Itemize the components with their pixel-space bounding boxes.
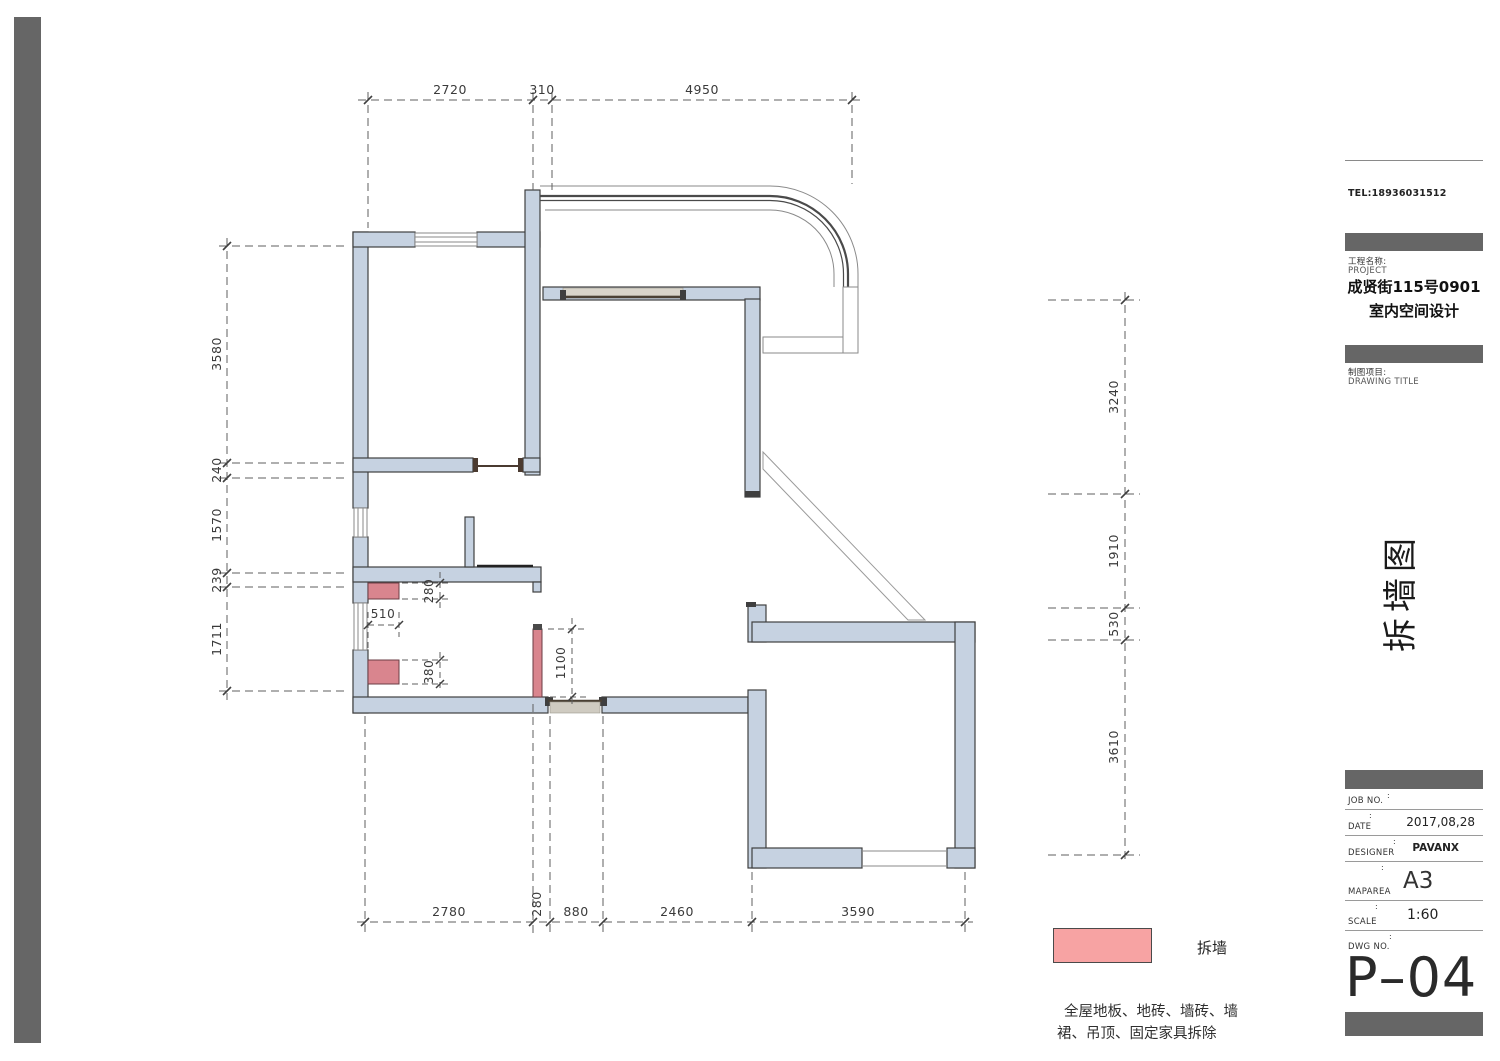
demolish-wall-1 <box>368 583 399 599</box>
dim-inner-510: 510 <box>371 607 395 621</box>
dim-bottom-280: 280 <box>529 891 544 916</box>
dim-chain-right <box>1048 292 1140 863</box>
wall-bottom-left <box>353 697 548 713</box>
balcony-curved-window <box>540 186 858 353</box>
dim-left-239: 239 <box>209 567 224 592</box>
diagonal-panel <box>763 452 925 620</box>
dim-chain-top <box>358 92 862 228</box>
dim-right-530: 530 <box>1106 611 1121 636</box>
window-hall-bottom-sill <box>550 702 600 713</box>
maparea-value: A3 <box>1403 868 1433 894</box>
title-bar-3 <box>1345 770 1483 789</box>
wall-mid-left <box>353 458 473 472</box>
scale-label: SCALE <box>1348 917 1377 927</box>
wall-stub <box>465 517 474 567</box>
project-label-en: PROJECT <box>1348 266 1387 276</box>
dim-bottom-3590: 3590 <box>841 904 875 919</box>
balcony-end-column <box>843 287 858 353</box>
door-jamb-right <box>518 458 523 472</box>
divider <box>1345 160 1483 161</box>
demolish-wall-2 <box>368 660 399 684</box>
title-bar-4 <box>1345 1012 1483 1036</box>
row-date: : DATE 2017,08,28 <box>1345 810 1483 836</box>
project-name-line2: 室内空间设计 <box>1345 300 1483 321</box>
wall-room2-bottom <box>752 848 862 868</box>
demolish-wall-3 <box>533 629 542 697</box>
dim-right-3240: 3240 <box>1106 380 1121 414</box>
dim-chain-bottom <box>357 704 973 933</box>
balcony-ledge <box>763 337 843 353</box>
title-block: TEL:18936031512 工程名称: PROJECT 成贤街115号090… <box>1345 0 1483 1061</box>
date-label: DATE <box>1348 822 1371 832</box>
drawing-sheet: 2720 310 4950 3580 240 1570 239 1711 324… <box>0 0 1500 1061</box>
title-bar-1 <box>1345 233 1483 251</box>
legend-demolish-label: 拆墙 <box>1197 937 1227 958</box>
wall-room2-right <box>955 622 975 868</box>
dim-top-4950: 4950 <box>685 82 719 97</box>
dim-bottom-880: 880 <box>563 904 588 919</box>
title-bar-2 <box>1345 345 1483 363</box>
jamb-cap-room2 <box>746 602 756 607</box>
wall-hall-right <box>745 299 760 497</box>
wall-vertical-tall <box>525 190 540 475</box>
dim-inner-1100: 1100 <box>554 647 568 680</box>
wall-mid-right <box>523 458 540 472</box>
dim-right-1910: 1910 <box>1106 534 1121 568</box>
dim-inner-380: 380 <box>422 660 436 684</box>
floor-plan-canvas: 2720 310 4950 3580 240 1570 239 1711 324… <box>0 0 1500 1061</box>
window-left-upper <box>354 508 367 537</box>
demolition-note: 全屋地板、地砖、墙砖、墙裙、吊顶、固定家具拆除 <box>1057 1001 1243 1046</box>
window-left-lower <box>354 603 367 650</box>
window-hall-top-sill <box>563 288 683 296</box>
jamb-cap-hall-right <box>745 491 760 497</box>
job-no-label: JOB NO. <box>1348 796 1383 806</box>
window-top-left <box>415 233 477 246</box>
legend-demolish-swatch <box>1053 928 1152 963</box>
dim-right-3610: 3610 <box>1106 730 1121 764</box>
dim-left-1570: 1570 <box>209 508 224 542</box>
wall-bottom-right <box>602 697 748 713</box>
dim-top-2720: 2720 <box>433 82 467 97</box>
wall-partition-step <box>533 582 541 592</box>
drawing-number: P–04 <box>1345 946 1477 1009</box>
row-maparea: : MAPAREA A3 <box>1345 862 1483 901</box>
dim-bottom-2780: 2780 <box>432 904 466 919</box>
drawing-title-label-en: DRAWING TITLE <box>1348 377 1419 387</box>
wall-room2-left <box>748 690 766 868</box>
scale-value: 1:60 <box>1407 907 1438 923</box>
dim-bottom-2460: 2460 <box>660 904 694 919</box>
demolition-walls <box>368 583 542 697</box>
demolish-wall-3-cap <box>533 624 542 630</box>
dim-left-240: 240 <box>209 457 224 482</box>
row-designer: : DESIGNER PAVANX <box>1345 836 1483 862</box>
designer-value: PAVANX <box>1412 842 1459 854</box>
dim-left-1711: 1711 <box>209 622 224 656</box>
dim-top-310: 310 <box>529 82 554 97</box>
dim-chain-left <box>219 238 348 700</box>
wall-room2-top <box>752 622 975 642</box>
project-name-line1: 成贤街115号0901 <box>1345 276 1483 297</box>
maparea-label: MAPAREA <box>1348 887 1391 897</box>
date-value: 2017,08,28 <box>1406 815 1475 829</box>
row-scale: : SCALE 1:60 <box>1345 901 1483 931</box>
dim-inner-280: 280 <box>422 579 436 603</box>
designer-label: DESIGNER <box>1348 848 1394 858</box>
title-rows: : JOB NO. : DATE 2017,08,28 : DESIGNER P… <box>1345 790 1483 955</box>
wall-room2-corner <box>947 848 975 868</box>
wall-top-left <box>353 232 415 247</box>
row-job-no: : JOB NO. <box>1345 790 1483 810</box>
tel-number: TEL:18936031512 <box>1348 188 1447 199</box>
wall-partition <box>353 567 541 582</box>
dim-left-3580: 3580 <box>209 337 224 371</box>
door-jamb-left <box>473 458 478 472</box>
dimension-labels: 2720 310 4950 3580 240 1570 239 1711 324… <box>209 82 1121 919</box>
